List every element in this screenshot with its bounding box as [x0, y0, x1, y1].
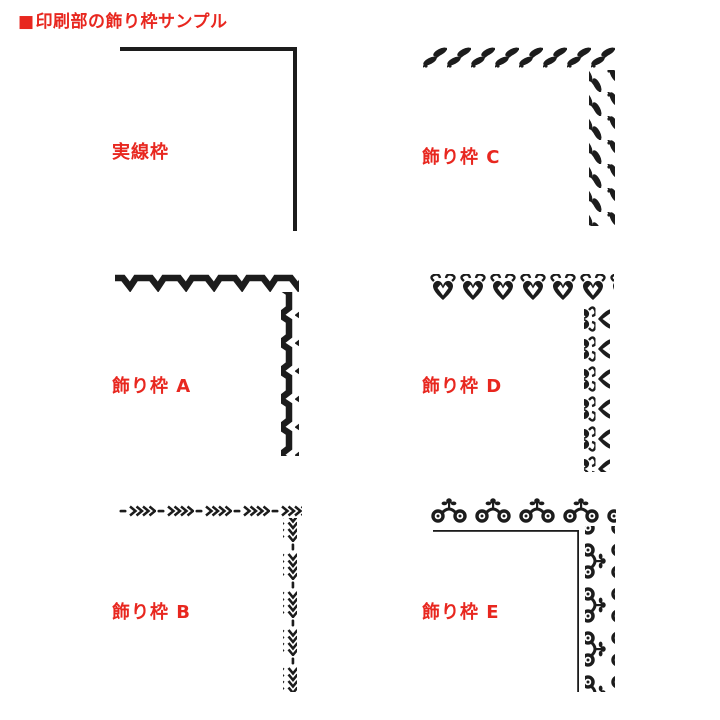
title-square-bullet-icon: ■	[18, 12, 35, 32]
sample-label: 飾り枠 A	[112, 372, 191, 398]
sample-frame-a: 飾り枠 A	[110, 270, 304, 462]
sample-solid-frame: 実線枠	[110, 44, 310, 244]
sample-frame-b: 飾り枠 B	[110, 500, 304, 694]
page-title-text: 印刷部の飾り枠サンプル	[36, 12, 228, 32]
sample-label: 飾り枠 D	[422, 372, 502, 398]
page-title: ■印刷部の飾り枠サンプル	[18, 7, 228, 32]
twisted-ribbon-corner-border	[115, 272, 299, 458]
sample-label: 飾り枠 B	[112, 598, 191, 624]
sample-frame-e: 飾り枠 E	[422, 494, 618, 694]
sample-label: 実線枠	[112, 138, 169, 164]
sample-sheet: ■印刷部の飾り枠サンプル 実線枠	[0, 0, 720, 720]
sample-label: 飾り枠 E	[422, 598, 500, 624]
sample-frame-c: 飾り枠 C	[422, 42, 618, 230]
leaf-vine-corner-border	[423, 44, 615, 226]
scroll-flower-corner-border	[428, 496, 616, 692]
sample-frame-d: 飾り枠 D	[422, 272, 616, 474]
sample-label: 飾り枠 C	[422, 143, 500, 169]
